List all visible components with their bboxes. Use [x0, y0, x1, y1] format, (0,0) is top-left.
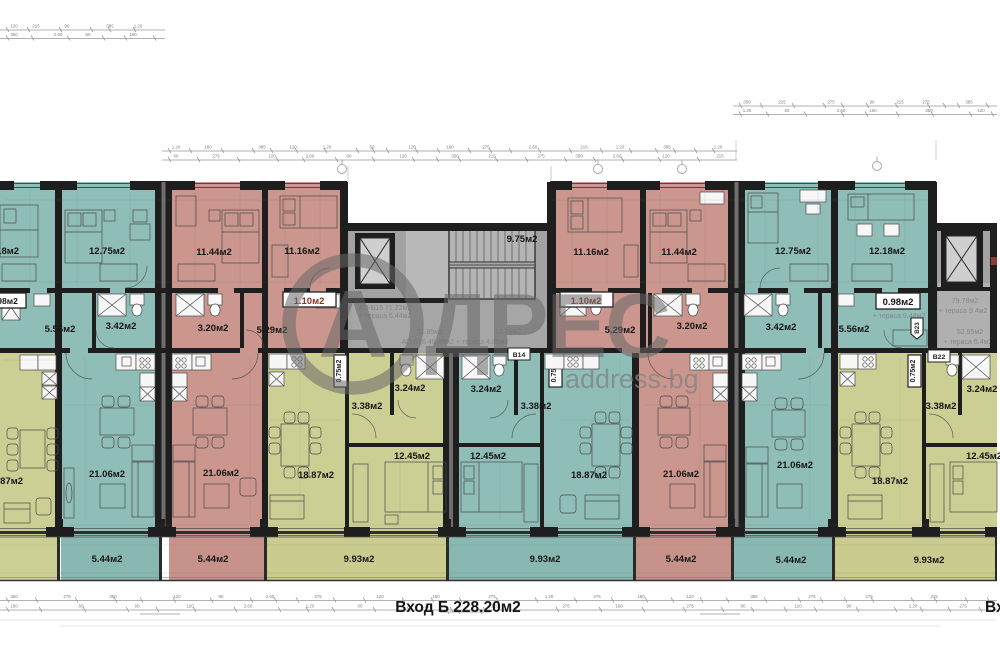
svg-text:B23: B23: [914, 322, 921, 334]
svg-text:0.98м2: 0.98м2: [0, 296, 18, 306]
svg-text:3.42м2: 3.42м2: [766, 322, 797, 333]
svg-text:90: 90: [870, 100, 875, 105]
svg-text:160: 160: [10, 604, 18, 609]
svg-text:11.16м2: 11.16м2: [284, 246, 320, 257]
svg-text:350: 350: [925, 108, 933, 113]
svg-text:275: 275: [537, 154, 545, 159]
svg-text:3.38м2: 3.38м2: [926, 401, 957, 412]
svg-text:350: 350: [10, 32, 18, 37]
svg-text:350: 350: [743, 100, 751, 105]
svg-text:2.60: 2.60: [54, 32, 63, 37]
svg-text:120: 120: [186, 604, 194, 609]
svg-text:120: 120: [794, 604, 802, 609]
svg-text:120: 120: [289, 145, 297, 150]
svg-text:1.20: 1.20: [306, 604, 315, 609]
svg-text:9.93м2: 9.93м2: [344, 554, 375, 565]
svg-text:9.75м2: 9.75м2: [507, 234, 538, 245]
svg-text:120: 120: [686, 594, 694, 599]
svg-text:275: 275: [865, 594, 873, 599]
svg-text:3.38м2: 3.38м2: [521, 401, 552, 412]
svg-text:79.78м2: 79.78м2: [952, 298, 978, 305]
svg-text:350: 350: [575, 154, 583, 159]
svg-text:275: 275: [922, 100, 930, 105]
svg-text:275: 275: [63, 594, 71, 599]
svg-text:215: 215: [580, 145, 588, 150]
svg-text:18.87м2: 18.87м2: [298, 470, 334, 481]
svg-text:275: 275: [562, 604, 570, 609]
svg-text:60: 60: [358, 604, 363, 609]
svg-text:21.06м2: 21.06м2: [663, 469, 699, 480]
svg-text:385: 385: [965, 100, 973, 105]
svg-text:120: 120: [268, 154, 276, 159]
svg-text:350: 350: [109, 594, 117, 599]
svg-text:275: 275: [314, 594, 322, 599]
svg-text:3.24м2: 3.24м2: [471, 384, 502, 395]
svg-text:18.87м2: 18.87м2: [872, 476, 908, 487]
svg-text:160: 160: [129, 32, 137, 37]
svg-text:1.20: 1.20: [323, 145, 332, 150]
svg-text:11.16м2: 11.16м2: [573, 247, 609, 258]
svg-text:385: 385: [258, 145, 266, 150]
svg-text:60: 60: [79, 604, 84, 609]
svg-text:12.45м2: 12.45м2: [394, 451, 430, 462]
svg-text:215: 215: [32, 24, 40, 29]
svg-text:3.20м2: 3.20м2: [198, 323, 229, 334]
svg-text:9.93м2: 9.93м2: [530, 554, 561, 565]
svg-text:12.45м2: 12.45м2: [470, 451, 506, 462]
svg-text:12.18м2: 12.18м2: [869, 246, 905, 257]
svg-text:90: 90: [219, 594, 224, 599]
svg-text:120: 120: [10, 24, 18, 29]
svg-text:215: 215: [896, 100, 904, 105]
svg-text:215: 215: [930, 594, 938, 599]
svg-text:90: 90: [741, 604, 746, 609]
svg-text:3.42м2: 3.42м2: [106, 321, 137, 332]
svg-text:90: 90: [65, 24, 70, 29]
svg-text:1.20: 1.20: [616, 145, 625, 150]
svg-text:ДРЕС: ДРЕС: [425, 276, 669, 377]
svg-text:215: 215: [488, 154, 496, 159]
svg-text:B22: B22: [933, 354, 946, 361]
svg-text:5.56м2: 5.56м2: [45, 324, 76, 335]
svg-text:2.60: 2.60: [529, 145, 538, 150]
svg-text:5.44м2: 5.44м2: [776, 555, 807, 566]
svg-text:5.44м2: 5.44м2: [198, 554, 229, 565]
svg-text:275: 275: [808, 594, 816, 599]
svg-text:90: 90: [135, 604, 140, 609]
svg-text:215: 215: [778, 100, 786, 105]
svg-text:12.75м2: 12.75м2: [775, 246, 811, 257]
svg-text:0.75м2: 0.75м2: [910, 360, 917, 383]
svg-text:2.60: 2.60: [837, 108, 846, 113]
svg-text:275: 275: [482, 145, 490, 150]
svg-text:+ тераса 9.4м2: + тераса 9.4м2: [939, 308, 988, 315]
svg-text:3.24м2: 3.24м2: [395, 383, 426, 394]
svg-text:120: 120: [662, 154, 670, 159]
svg-text:2.60: 2.60: [306, 154, 315, 159]
svg-text:160: 160: [615, 604, 623, 609]
svg-text:60: 60: [347, 154, 352, 159]
svg-text:215: 215: [716, 154, 724, 159]
svg-text:385: 385: [106, 24, 114, 29]
svg-text:21.06м2: 21.06м2: [89, 469, 125, 480]
svg-text:1.20: 1.20: [134, 24, 143, 29]
svg-text:385: 385: [750, 594, 758, 599]
svg-text:А: А: [318, 271, 387, 378]
svg-text:275: 275: [593, 594, 601, 599]
svg-text:18.87м2: 18.87м2: [571, 470, 607, 481]
svg-text:3.20м2: 3.20м2: [677, 321, 708, 332]
svg-text:350: 350: [451, 154, 459, 159]
svg-text:21.06м2: 21.06м2: [203, 468, 239, 479]
svg-text:12.18м2: 12.18м2: [0, 246, 19, 257]
svg-text:90: 90: [847, 604, 852, 609]
svg-text:5.44м2: 5.44м2: [92, 554, 123, 565]
svg-text:160: 160: [637, 594, 645, 599]
svg-text:275: 275: [686, 604, 694, 609]
svg-text:160: 160: [204, 145, 212, 150]
svg-text:60: 60: [174, 154, 179, 159]
svg-text:5.56м2: 5.56м2: [839, 324, 870, 335]
svg-text:11.44м2: 11.44м2: [196, 247, 232, 258]
svg-text:address.bg: address.bg: [565, 364, 699, 394]
svg-text:120: 120: [977, 108, 985, 113]
svg-text:+ тераса 5.4м2: + тераса 5.4м2: [944, 339, 993, 346]
svg-text:120: 120: [173, 594, 181, 599]
svg-text:275: 275: [212, 154, 220, 159]
svg-text:12.45м2: 12.45м2: [966, 451, 1000, 462]
svg-text:385: 385: [663, 145, 671, 150]
svg-text:275: 275: [959, 604, 967, 609]
svg-text:Вход Б 228.20м2: Вход Б 228.20м2: [395, 599, 521, 616]
svg-text:1.20: 1.20: [172, 145, 181, 150]
svg-text:12.75м2: 12.75м2: [89, 246, 125, 257]
svg-text:120: 120: [408, 145, 416, 150]
svg-text:Вход В: Вход В: [985, 599, 1000, 616]
svg-text:60: 60: [86, 32, 91, 37]
svg-text:275: 275: [827, 100, 835, 105]
svg-text:160: 160: [869, 108, 877, 113]
svg-text:18.87м2: 18.87м2: [0, 476, 23, 487]
svg-text:5.44м2: 5.44м2: [666, 554, 697, 565]
svg-text:2.60: 2.60: [244, 604, 253, 609]
svg-text:160: 160: [446, 145, 454, 150]
svg-text:60: 60: [370, 145, 375, 150]
svg-text:2.60: 2.60: [266, 594, 275, 599]
svg-text:1.20: 1.20: [545, 594, 554, 599]
svg-text:52.95м2: 52.95м2: [957, 329, 983, 336]
svg-text:1.20: 1.20: [743, 108, 752, 113]
svg-text:11.44м2: 11.44м2: [661, 247, 697, 258]
svg-text:3.24м2: 3.24м2: [967, 384, 998, 395]
svg-text:0.98м2: 0.98м2: [883, 297, 914, 308]
svg-text:1.20: 1.20: [909, 604, 918, 609]
svg-text:21.06м2: 21.06м2: [777, 460, 813, 471]
svg-text:60: 60: [785, 108, 790, 113]
svg-text:120: 120: [376, 594, 384, 599]
svg-text:2.60: 2.60: [613, 154, 622, 159]
svg-text:1.20: 1.20: [714, 145, 723, 150]
svg-text:3.38м2: 3.38м2: [352, 401, 383, 412]
svg-text:120: 120: [399, 154, 407, 159]
svg-text:350: 350: [10, 594, 18, 599]
svg-text:9.93м2: 9.93м2: [914, 555, 945, 566]
